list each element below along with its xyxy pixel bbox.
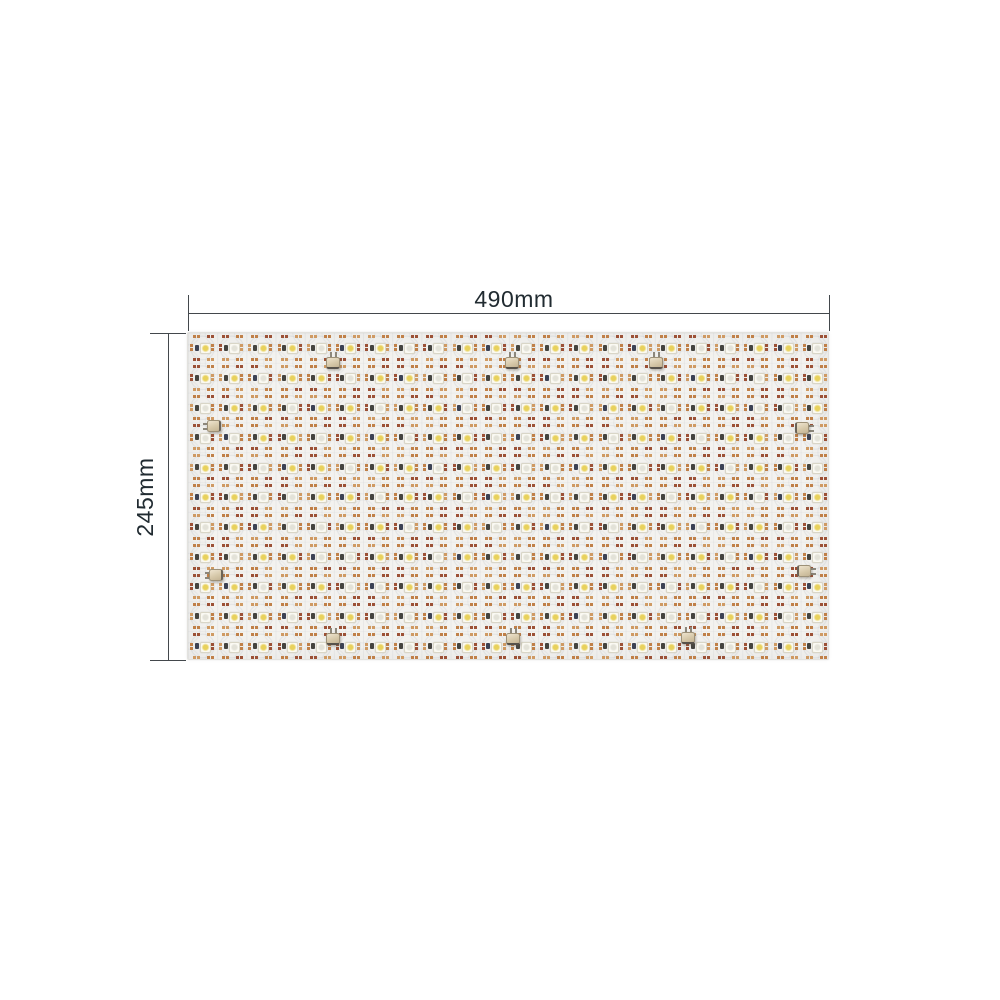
- solder-pad-colon: [707, 643, 710, 650]
- solder-pad-pair: [251, 388, 258, 391]
- solder-pad-colon: [707, 523, 710, 530]
- solder-pad-colon: [774, 374, 777, 381]
- connector-body: [649, 357, 663, 369]
- solder-pad-pair: [426, 544, 433, 547]
- solder-pad-pair: [543, 507, 550, 510]
- driver-chip: [195, 494, 199, 500]
- solder-pad-pair: [616, 574, 623, 577]
- solder-pad-pair: [586, 417, 593, 420]
- solder-pad-colon: [803, 493, 806, 500]
- solder-pad-pair: [324, 447, 331, 450]
- solder-pad-pair: [339, 567, 346, 570]
- led-die: [783, 642, 794, 653]
- solder-pad-colon: [803, 643, 806, 650]
- driver-chip: [195, 554, 199, 560]
- solder-pad-colon: [240, 643, 243, 650]
- solder-pad-pair: [674, 596, 681, 599]
- driver-chip: [749, 613, 753, 619]
- driver-chip: [691, 524, 695, 530]
- solder-pad-colon: [365, 374, 368, 381]
- led-die: [462, 522, 473, 533]
- solder-pad-colon: [386, 523, 389, 530]
- led-die: [287, 612, 298, 623]
- led-die: [462, 433, 473, 444]
- solder-pad-pair: [499, 574, 506, 577]
- solder-pad-colon: [620, 374, 623, 381]
- solder-pad-pair: [602, 454, 609, 457]
- led-die: [200, 373, 211, 384]
- solder-pad-pair: [777, 388, 784, 391]
- solder-pad-colon: [248, 613, 251, 620]
- solder-pad-pair: [440, 626, 447, 629]
- solder-pad-pair: [295, 335, 302, 338]
- solder-pad-pair: [602, 484, 609, 487]
- led-cell: [451, 363, 480, 393]
- solder-pad-pair: [499, 537, 506, 540]
- solder-pad-pair: [747, 358, 754, 361]
- led-die: [783, 552, 794, 563]
- solder-pad-colon: [269, 404, 272, 411]
- solder-pad-colon: [678, 404, 681, 411]
- led-cell: [276, 482, 305, 512]
- led-die: [696, 582, 707, 593]
- solder-pad-colon: [590, 493, 593, 500]
- solder-pad-colon: [394, 404, 397, 411]
- led-cell: [392, 333, 421, 363]
- led-cell: [567, 542, 596, 572]
- solder-pad-pair: [456, 514, 463, 517]
- led-die: [462, 463, 473, 474]
- led-cell: [276, 422, 305, 452]
- led-die: [666, 642, 677, 653]
- solder-pad-pair: [222, 544, 229, 547]
- solder-pad-colon: [795, 493, 798, 500]
- led-die: [812, 343, 823, 354]
- solder-pad-colon: [240, 583, 243, 590]
- solder-pad-pair: [674, 484, 681, 487]
- led-cell: [597, 393, 626, 423]
- solder-pad-pair: [777, 507, 784, 510]
- solder-pad-pair: [514, 574, 521, 577]
- driver-chip: [340, 345, 344, 351]
- solder-pad-pair: [397, 626, 404, 629]
- connector-body: [209, 569, 223, 581]
- driver-chip: [691, 434, 695, 440]
- solder-pad-pair: [368, 417, 375, 420]
- solder-pad-pair: [222, 603, 229, 606]
- driver-chip: [516, 405, 520, 411]
- solder-pad-pair: [674, 626, 681, 629]
- driver-chip: [340, 464, 344, 470]
- solder-pad-colon: [299, 344, 302, 351]
- led-die: [608, 612, 619, 623]
- driver-chip: [282, 613, 286, 619]
- solder-pad-pair: [660, 388, 667, 391]
- solder-pad-colon: [824, 434, 827, 441]
- solder-pad-pair: [236, 335, 243, 338]
- solder-pad-colon: [211, 464, 214, 471]
- solder-pad-pair: [265, 454, 272, 457]
- solder-pad-pair: [791, 447, 798, 450]
- solder-pad-pair: [616, 507, 623, 510]
- solder-pad-pair: [281, 477, 288, 480]
- solder-pad-pair: [222, 424, 229, 427]
- solder-pad-pair: [456, 633, 463, 636]
- led-cell: [246, 393, 275, 423]
- solder-pad-pair: [718, 365, 725, 368]
- solder-pad-pair: [281, 424, 288, 427]
- led-die: [258, 582, 269, 593]
- solder-pad-pair: [207, 507, 214, 510]
- solder-pad-colon: [474, 523, 477, 530]
- led-die: [812, 522, 823, 533]
- solder-pad-pair: [747, 626, 754, 629]
- led-cell: [188, 333, 217, 363]
- solder-pad-colon: [211, 613, 214, 620]
- driver-chip: [720, 494, 724, 500]
- driver-chip: [574, 434, 578, 440]
- led-die: [783, 433, 794, 444]
- solder-pad-pair: [645, 574, 652, 577]
- led-die: [783, 522, 794, 533]
- led-die: [637, 492, 648, 503]
- solder-pad-pair: [193, 477, 200, 480]
- solder-pad-pair: [674, 417, 681, 420]
- driver-chip: [807, 375, 811, 381]
- solder-pad-pair: [440, 424, 447, 427]
- solder-pad-colon: [240, 404, 243, 411]
- driver-chip: [195, 464, 199, 470]
- solder-pad-pair: [353, 574, 360, 577]
- solder-pad-pair: [281, 335, 288, 338]
- led-cell: [713, 542, 742, 572]
- solder-pad-pair: [557, 388, 564, 391]
- solder-pad-pair: [426, 514, 433, 517]
- led-die: [521, 552, 532, 563]
- solder-pad-colon: [803, 464, 806, 471]
- solder-pad-pair: [368, 454, 375, 457]
- solder-pad-pair: [456, 626, 463, 629]
- solder-pad-pair: [382, 574, 389, 577]
- solder-pad-pair: [732, 484, 739, 487]
- solder-pad-pair: [251, 484, 258, 487]
- led-die: [345, 403, 356, 414]
- led-cell: [772, 512, 801, 542]
- led-die: [258, 522, 269, 533]
- solder-pad-pair: [339, 335, 346, 338]
- solder-pad-pair: [368, 424, 375, 427]
- solder-pad-pair: [339, 626, 346, 629]
- solder-pad-colon: [474, 434, 477, 441]
- solder-pad-colon: [657, 344, 660, 351]
- driver-chip: [486, 524, 490, 530]
- driver-chip: [603, 613, 607, 619]
- solder-pad-pair: [295, 388, 302, 391]
- solder-pad-pair: [602, 507, 609, 510]
- solder-pad-pair: [631, 574, 638, 577]
- solder-pad-colon: [453, 493, 456, 500]
- led-die: [521, 373, 532, 384]
- solder-pad-pair: [777, 447, 784, 450]
- solder-pad-pair: [251, 537, 258, 540]
- solder-pad-colon: [415, 643, 418, 650]
- solder-pad-pair: [456, 477, 463, 480]
- driver-chip: [457, 464, 461, 470]
- led-cell: [567, 601, 596, 631]
- solder-pad-pair: [557, 417, 564, 420]
- led-die: [579, 492, 590, 503]
- led-cell: [538, 542, 567, 572]
- solder-pad-pair: [514, 388, 521, 391]
- led-die: [550, 582, 561, 593]
- solder-pad-colon: [248, 643, 251, 650]
- led-cell: [772, 631, 801, 661]
- solder-pad-colon: [686, 493, 689, 500]
- solder-pad-pair: [557, 424, 564, 427]
- solder-pad-colon: [503, 404, 506, 411]
- solder-pad-colon: [423, 464, 426, 471]
- solder-pad-pair: [397, 365, 404, 368]
- solder-pad-pair: [747, 454, 754, 457]
- solder-pad-colon: [744, 643, 747, 650]
- solder-pad-pair: [485, 388, 492, 391]
- solder-pad-pair: [645, 484, 652, 487]
- solder-pad-pair: [324, 596, 331, 599]
- led-die: [666, 463, 677, 474]
- solder-pad-pair: [689, 484, 696, 487]
- solder-pad-pair: [528, 358, 535, 361]
- solder-pad-pair: [616, 388, 623, 391]
- solder-pad-pair: [747, 603, 754, 606]
- led-cell: [509, 512, 538, 542]
- solder-pad-colon: [657, 404, 660, 411]
- solder-pad-pair: [602, 514, 609, 517]
- solder-pad-pair: [528, 335, 535, 338]
- driver-chip: [720, 583, 724, 589]
- solder-pad-pair: [660, 424, 667, 427]
- solder-pad-pair: [689, 596, 696, 599]
- led-cell: [363, 631, 392, 661]
- solder-pad-pair: [820, 395, 827, 398]
- driver-chip: [253, 554, 257, 560]
- led-die: [229, 403, 240, 414]
- driver-chip: [749, 524, 753, 530]
- solder-pad-colon: [532, 374, 535, 381]
- solder-pad-pair: [514, 596, 521, 599]
- solder-pad-pair: [353, 365, 360, 368]
- solder-pad-pair: [368, 567, 375, 570]
- solder-pad-pair: [236, 514, 243, 517]
- solder-pad-pair: [499, 596, 506, 599]
- solder-pad-colon: [503, 344, 506, 351]
- solder-pad-pair: [295, 514, 302, 517]
- driver-chip: [253, 464, 257, 470]
- driver-chip: [749, 554, 753, 560]
- solder-pad-pair: [222, 447, 229, 450]
- solder-pad-pair: [499, 656, 506, 659]
- led-die: [608, 642, 619, 653]
- solder-pad-colon: [248, 404, 251, 411]
- led-die: [550, 612, 561, 623]
- solder-pad-colon: [386, 583, 389, 590]
- solder-pad-pair: [470, 477, 477, 480]
- solder-pad-pair: [207, 656, 214, 659]
- driver-chip: [340, 613, 344, 619]
- solder-pad-pair: [602, 574, 609, 577]
- solder-pad-colon: [774, 404, 777, 411]
- solder-pad-colon: [394, 464, 397, 471]
- solder-pad-pair: [718, 424, 725, 427]
- solder-pad-pair: [339, 424, 346, 427]
- solder-pad-pair: [397, 603, 404, 606]
- solder-pad-colon: [278, 583, 281, 590]
- driver-chip: [574, 583, 578, 589]
- led-cell: [567, 631, 596, 661]
- led-cell: [392, 631, 421, 661]
- solder-pad-pair: [631, 395, 638, 398]
- led-die: [229, 343, 240, 354]
- led-die: [550, 433, 561, 444]
- solder-pad-pair: [456, 656, 463, 659]
- solder-pad-pair: [820, 626, 827, 629]
- solder-pad-pair: [324, 335, 331, 338]
- led-die: [754, 463, 765, 474]
- solder-pad-pair: [295, 484, 302, 487]
- solder-pad-pair: [631, 477, 638, 480]
- solder-pad-colon: [678, 374, 681, 381]
- solder-pad-pair: [456, 596, 463, 599]
- solder-pad-pair: [689, 424, 696, 427]
- solder-pad-pair: [485, 454, 492, 457]
- solder-pad-colon: [744, 523, 747, 530]
- solder-pad-colon: [278, 434, 281, 441]
- solder-pad-pair: [674, 567, 681, 570]
- solder-pad-colon: [357, 553, 360, 560]
- led-die: [637, 522, 648, 533]
- solder-pad-pair: [586, 633, 593, 636]
- solder-pad-pair: [718, 358, 725, 361]
- solder-pad-pair: [193, 424, 200, 427]
- solder-pad-colon: [744, 374, 747, 381]
- driver-chip: [428, 405, 432, 411]
- solder-pad-pair: [265, 537, 272, 540]
- led-die: [521, 522, 532, 533]
- led-cell: [684, 542, 713, 572]
- solder-pad-pair: [222, 537, 229, 540]
- led-die: [287, 373, 298, 384]
- solder-pad-colon: [211, 523, 214, 530]
- led-die: [783, 343, 794, 354]
- led-cell: [655, 601, 684, 631]
- solder-pad-pair: [324, 567, 331, 570]
- solder-pad-pair: [572, 484, 579, 487]
- solder-pad-pair: [543, 544, 550, 547]
- solder-pad-colon: [269, 344, 272, 351]
- led-die: [462, 582, 473, 593]
- solder-pad-pair: [426, 603, 433, 606]
- led-cell: [655, 422, 684, 452]
- solder-pad-pair: [499, 626, 506, 629]
- led-cell: [276, 601, 305, 631]
- solder-pad-colon: [453, 464, 456, 471]
- solder-pad-pair: [281, 633, 288, 636]
- solder-pad-pair: [397, 507, 404, 510]
- driver-chip: [428, 583, 432, 589]
- solder-pad-pair: [718, 454, 725, 457]
- solder-pad-pair: [528, 484, 535, 487]
- solder-pad-colon: [336, 464, 339, 471]
- solder-pad-colon: [269, 643, 272, 650]
- solder-pad-pair: [411, 454, 418, 457]
- solder-pad-pair: [703, 477, 710, 480]
- driver-chip: [195, 643, 199, 649]
- solder-pad-colon: [423, 434, 426, 441]
- driver-chip: [778, 524, 782, 530]
- solder-pad-colon: [744, 344, 747, 351]
- driver-chip: [545, 524, 549, 530]
- solder-pad-pair: [426, 358, 433, 361]
- led-die: [287, 463, 298, 474]
- solder-pad-pair: [382, 567, 389, 570]
- solder-pad-pair: [514, 656, 521, 659]
- solder-pad-pair: [324, 537, 331, 540]
- solder-pad-pair: [732, 388, 739, 391]
- solder-pad-pair: [557, 507, 564, 510]
- driver-chip: [399, 464, 403, 470]
- led-die: [375, 612, 386, 623]
- solder-pad-pair: [368, 388, 375, 391]
- solder-pad-colon: [386, 643, 389, 650]
- solder-pad-colon: [649, 344, 652, 351]
- led-die: [287, 433, 298, 444]
- solder-pad-pair: [660, 537, 667, 540]
- solder-pad-pair: [703, 388, 710, 391]
- connector-body: [326, 633, 340, 645]
- led-die: [229, 522, 240, 533]
- driver-chip: [691, 494, 695, 500]
- led-cell: [305, 542, 334, 572]
- solder-pad-pair: [499, 514, 506, 517]
- solder-pad-colon: [240, 523, 243, 530]
- solder-pad-pair: [557, 484, 564, 487]
- solder-pad-pair: [251, 417, 258, 420]
- led-die: [287, 582, 298, 593]
- solder-pad-pair: [528, 544, 535, 547]
- solder-pad-pair: [440, 335, 447, 338]
- solder-pad-pair: [251, 626, 258, 629]
- solder-pad-pair: [791, 477, 798, 480]
- solder-pad-pair: [777, 424, 784, 427]
- solder-pad-pair: [426, 477, 433, 480]
- solder-pad-pair: [732, 365, 739, 368]
- solder-pad-pair: [339, 656, 346, 659]
- solder-pad-colon: [328, 344, 331, 351]
- solder-pad-colon: [474, 374, 477, 381]
- solder-pad-colon: [795, 344, 798, 351]
- solder-pad-colon: [394, 493, 397, 500]
- solder-pad-pair: [616, 537, 623, 540]
- solder-pad-pair: [806, 447, 813, 450]
- driver-chip: [399, 524, 403, 530]
- led-cell: [246, 631, 275, 661]
- solder-pad-pair: [586, 484, 593, 487]
- solder-pad-colon: [219, 523, 222, 530]
- solder-pad-pair: [295, 633, 302, 636]
- solder-pad-pair: [703, 633, 710, 636]
- solder-pad-colon: [357, 344, 360, 351]
- solder-pad-pair: [528, 574, 535, 577]
- solder-pad-pair: [368, 365, 375, 368]
